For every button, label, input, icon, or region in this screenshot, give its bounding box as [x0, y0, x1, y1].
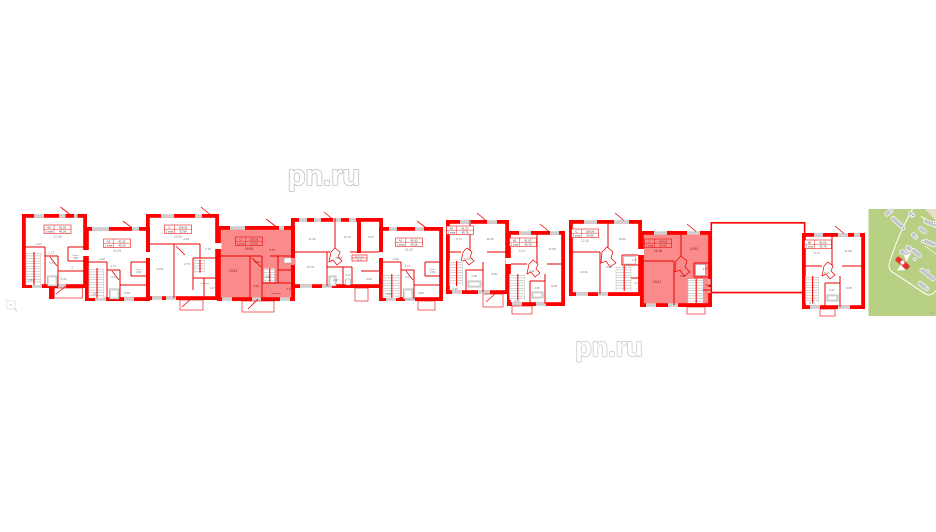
svg-text:60: 60	[450, 226, 454, 230]
svg-text:pn.ru: pn.ru	[288, 160, 361, 192]
svg-text:45.26: 45.26	[119, 243, 126, 247]
svg-text:1 этаж: 1 этаж	[45, 230, 53, 233]
svg-text:5.71: 5.71	[456, 237, 462, 241]
svg-text:1 этаж: 1 этаж	[237, 242, 245, 245]
svg-text:16.16: 16.16	[654, 249, 662, 253]
svg-text:10.79: 10.79	[306, 265, 314, 269]
svg-text:2.92: 2.92	[99, 257, 105, 261]
svg-text:5.16: 5.16	[824, 271, 830, 275]
svg-text:2.07: 2.07	[36, 242, 42, 246]
svg-text:1.17: 1.17	[111, 264, 117, 268]
svg-text:3.70: 3.70	[205, 247, 211, 251]
svg-text:5.47: 5.47	[368, 235, 374, 239]
svg-text:2 этаж: 2 этаж	[646, 244, 654, 247]
svg-text:60: 60	[47, 225, 51, 229]
svg-text:9.05: 9.05	[846, 286, 852, 290]
svg-text:45.26: 45.26	[59, 229, 66, 233]
svg-text:3.84: 3.84	[366, 277, 372, 281]
svg-text:2.75: 2.75	[184, 262, 190, 266]
svg-text:5.40: 5.40	[809, 301, 815, 305]
svg-text:5.16: 5.16	[529, 269, 535, 273]
svg-text:60: 60	[808, 240, 812, 244]
svg-text:13.31: 13.31	[580, 270, 588, 274]
svg-text:4.35: 4.35	[534, 286, 540, 290]
svg-text:3.04: 3.04	[111, 275, 117, 279]
svg-text:C: C	[648, 239, 650, 243]
svg-text:4.28: 4.28	[471, 274, 477, 278]
svg-text:45.76: 45.76	[525, 242, 532, 246]
svg-text:3.56: 3.56	[49, 261, 55, 265]
svg-text:1 этаж: 1 этаж	[166, 230, 174, 233]
svg-text:3.04: 3.04	[405, 275, 411, 279]
svg-text:3.98: 3.98	[452, 287, 458, 291]
svg-text:22.90: 22.90	[174, 235, 182, 239]
svg-text:45.26: 45.26	[411, 242, 418, 246]
svg-text:1.17: 1.17	[49, 251, 55, 255]
svg-text:4.47: 4.47	[333, 278, 339, 282]
svg-text:17.40: 17.40	[308, 237, 316, 241]
svg-text:4.09: 4.09	[386, 292, 392, 296]
svg-text:5.80: 5.80	[514, 299, 520, 303]
svg-text:21.09: 21.09	[113, 249, 121, 253]
svg-text:45.76: 45.76	[462, 230, 469, 234]
svg-text:13.73: 13.73	[343, 235, 351, 239]
svg-text:54.90: 54.90	[587, 233, 594, 237]
svg-text:3.99: 3.99	[430, 270, 436, 274]
svg-text:1 этаж: 1 этаж	[105, 244, 113, 247]
svg-text:3.99: 3.99	[136, 270, 142, 274]
svg-text:1.77: 1.77	[702, 267, 708, 271]
svg-text:1.17: 1.17	[405, 264, 411, 268]
svg-text:53.98: 53.98	[180, 229, 187, 233]
svg-text:11.59: 11.59	[844, 249, 851, 253]
svg-text:A2: A2	[107, 239, 111, 243]
svg-text:8.89: 8.89	[606, 265, 612, 269]
svg-text:5.71: 5.71	[814, 251, 820, 255]
svg-text:5.71: 5.71	[519, 249, 525, 253]
svg-text:53.98: 53.98	[251, 241, 258, 245]
svg-text:2 этаж: 2 этаж	[511, 243, 519, 246]
svg-text:9.08: 9.08	[551, 284, 557, 288]
svg-text:Кладовая: Кладовая	[201, 283, 210, 285]
svg-text:4.74: 4.74	[705, 283, 711, 287]
svg-text:1 этаж: 1 этаж	[397, 243, 405, 246]
svg-text:11.59: 11.59	[548, 247, 555, 251]
svg-text:54.90: 54.90	[660, 243, 667, 247]
svg-text:1.77: 1.77	[631, 258, 637, 262]
svg-text:9.55: 9.55	[418, 291, 424, 295]
svg-text:2 этаж: 2 этаж	[806, 245, 814, 248]
svg-text:3.70: 3.70	[269, 248, 275, 252]
svg-text:5.30: 5.30	[61, 277, 67, 281]
svg-text:45.76: 45.76	[820, 244, 827, 248]
svg-text:9.08: 9.08	[491, 272, 497, 276]
svg-text:10.90: 10.90	[690, 247, 698, 251]
svg-text:53.98: 53.98	[245, 247, 253, 251]
svg-text:27.09: 27.09	[54, 235, 62, 239]
svg-text:6.05: 6.05	[254, 260, 260, 264]
svg-text:C: C	[575, 229, 577, 233]
svg-text:2 этаж: 2 этаж	[448, 231, 456, 234]
svg-text:11.59: 11.59	[486, 237, 493, 241]
svg-text:A2 91.02: A2 91.02	[355, 256, 365, 259]
svg-text:13.53: 13.53	[229, 269, 237, 273]
svg-text:3.47: 3.47	[209, 286, 215, 290]
svg-text:45.26: 45.26	[357, 260, 363, 262]
svg-text:21.09: 21.09	[405, 248, 413, 252]
svg-text:13.31: 13.31	[653, 280, 661, 284]
svg-text:2.75: 2.75	[265, 275, 271, 279]
svg-text:60: 60	[513, 238, 517, 242]
svg-text:pn.ru: pn.ru	[575, 332, 643, 362]
svg-text:9.55: 9.55	[124, 291, 130, 295]
svg-text:5.78: 5.78	[464, 257, 470, 261]
svg-text:C: C	[168, 225, 170, 229]
svg-text:8.89: 8.89	[680, 274, 686, 278]
svg-text:A2: A2	[399, 238, 403, 242]
svg-text:13.51: 13.51	[156, 267, 164, 271]
svg-text:4.91: 4.91	[253, 284, 259, 288]
svg-text:4.74: 4.74	[634, 281, 640, 285]
svg-text:2.12: 2.12	[345, 273, 351, 277]
svg-text:12.16: 12.16	[581, 239, 589, 243]
svg-text:C: C	[239, 237, 241, 241]
svg-text:2.86: 2.86	[73, 256, 79, 260]
svg-text:2.92: 2.92	[393, 257, 399, 261]
svg-text:8.84: 8.84	[336, 256, 342, 260]
svg-text:4.29: 4.29	[183, 237, 189, 241]
svg-text:Кладовая: Кладовая	[272, 293, 281, 295]
svg-text:4.09: 4.09	[92, 292, 98, 296]
svg-text:© OSM: © OSM	[926, 312, 933, 315]
svg-text:4.27: 4.27	[829, 288, 835, 292]
svg-text:2 этаж: 2 этаж	[573, 234, 581, 237]
svg-text:4.81: 4.81	[28, 278, 34, 282]
svg-text:10.90: 10.90	[618, 237, 626, 241]
